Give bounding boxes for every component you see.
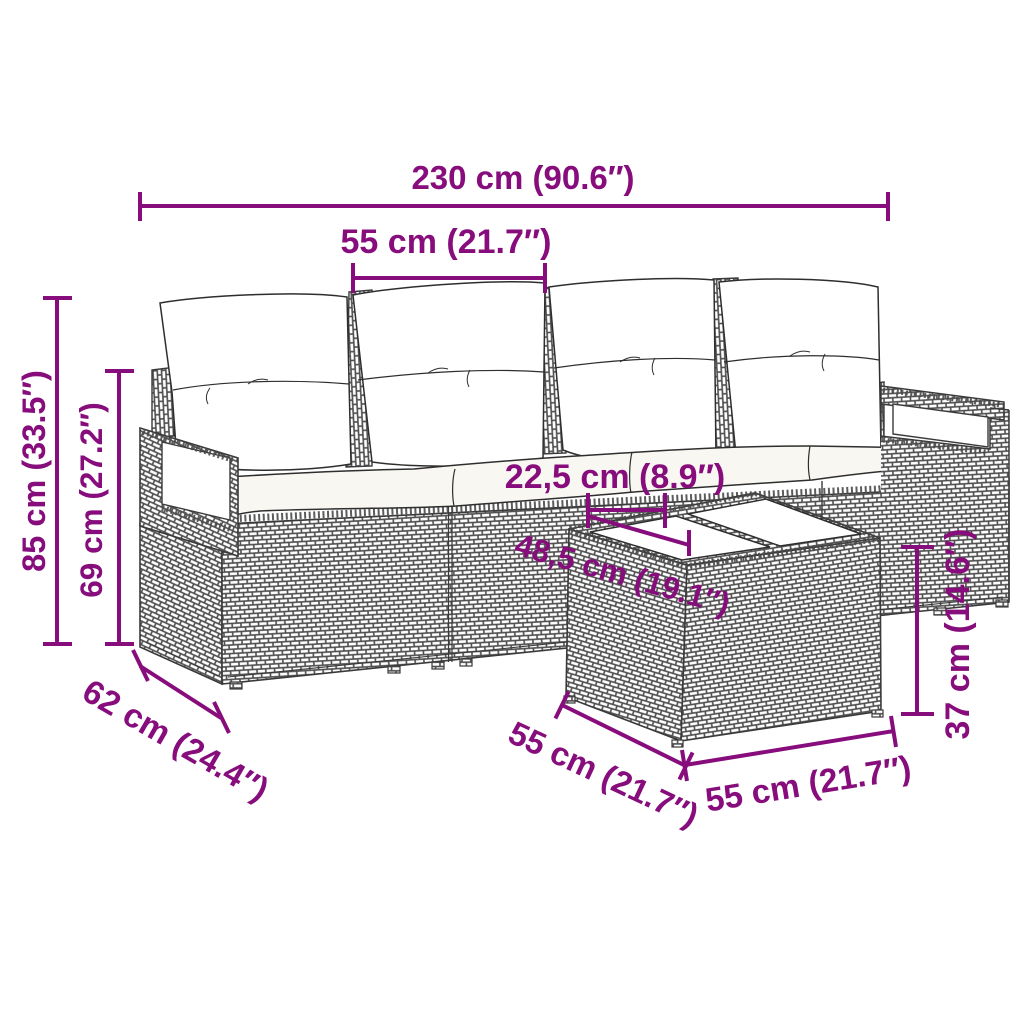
- svg-text:230 cm (90.6″): 230 cm (90.6″): [411, 159, 634, 196]
- svg-text:69 cm (27.2″): 69 cm (27.2″): [73, 402, 109, 597]
- svg-text:55 cm (21.7″): 55 cm (21.7″): [341, 223, 552, 261]
- svg-text:22,5 cm (8.9″): 22,5 cm (8.9″): [505, 458, 725, 496]
- svg-text:85 cm (33.5″): 85 cm (33.5″): [16, 370, 52, 572]
- svg-text:37 cm (14.6″): 37 cm (14.6″): [939, 529, 977, 740]
